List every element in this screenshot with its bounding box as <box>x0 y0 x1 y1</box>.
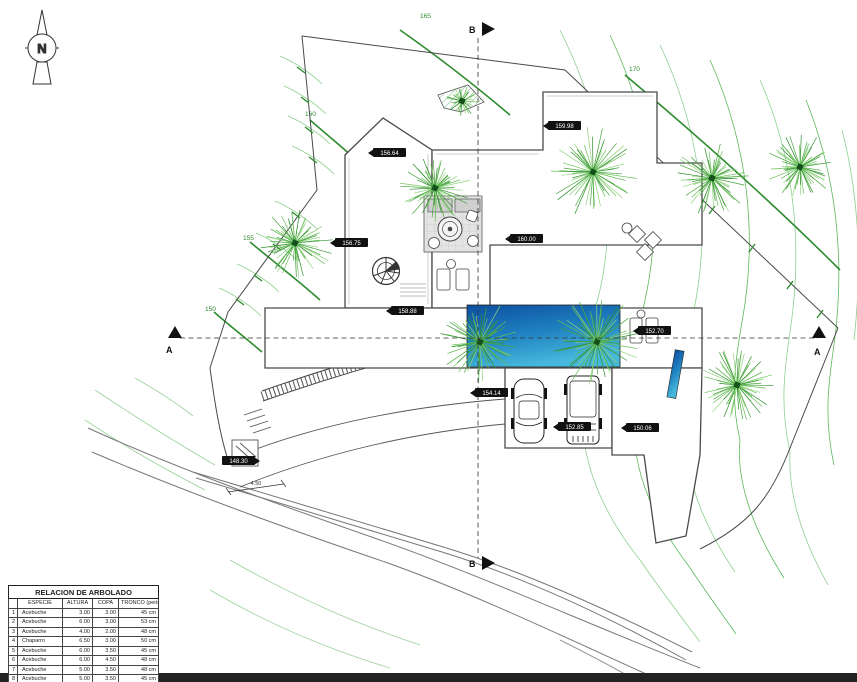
cell: Acebuche <box>18 646 63 656</box>
cell: 3.00 <box>93 618 119 628</box>
spot-elevation-label: 160.00 <box>505 234 543 243</box>
cell: 48 cm <box>119 627 159 637</box>
cell: 3.50 <box>93 646 119 656</box>
cell: 7 <box>9 665 18 675</box>
svg-text:156.64: 156.64 <box>380 151 399 157</box>
cell: Acebuche <box>18 627 63 637</box>
compass-north-label: N <box>37 41 46 56</box>
spot-elevation-label: 158.88 <box>386 306 424 315</box>
site-plan-drawing: 165 170 160 155 150 <box>0 0 857 682</box>
table-row: 5 Acebuche 6.00 3.50 45 cm <box>9 646 159 656</box>
compass-needle-icon <box>37 10 47 35</box>
cell: 5.00 <box>63 665 93 675</box>
section-label-b-top: B <box>469 25 476 35</box>
driveway-width-dimension: 4.50 <box>226 480 286 495</box>
cell: 48 cm <box>119 656 159 666</box>
cell: Acebuche <box>18 656 63 666</box>
svg-text:156.75: 156.75 <box>342 241 361 247</box>
tree <box>261 210 333 279</box>
svg-text:154.14: 154.14 <box>482 391 501 397</box>
spot-elevation-label: 150.06 <box>621 423 659 432</box>
cell: Acebuche <box>18 608 63 618</box>
spot-elevation-label: 152.70 <box>633 326 671 335</box>
section-arrow-a-left <box>168 326 182 338</box>
cell: 6.00 <box>63 618 93 628</box>
cell: 50 cm <box>119 637 159 647</box>
cell: 3.00 <box>63 608 93 618</box>
cell: 3.50 <box>93 665 119 675</box>
col-copa: COPA <box>93 599 119 609</box>
compass-base <box>33 62 51 84</box>
svg-text:150.06: 150.06 <box>633 426 652 432</box>
contour-label-160: 160 <box>305 111 316 118</box>
svg-text:160.00: 160.00 <box>517 237 536 243</box>
col-tronco: TRONCO (perimetro) <box>119 599 159 609</box>
cell: 6 <box>9 656 18 666</box>
car-suv <box>564 376 602 444</box>
contour-label-165: 165 <box>420 13 431 20</box>
cell: 45 cm <box>119 646 159 656</box>
svg-text:4.50: 4.50 <box>251 481 262 487</box>
cell: 45 cm <box>119 608 159 618</box>
cell: 3.00 <box>93 608 119 618</box>
spot-elevation-label: 154.14 <box>470 388 508 397</box>
cell: Chaparro <box>18 637 63 647</box>
table-title: RELACION DE ARBOLADO <box>9 586 159 599</box>
cell: 4.00 <box>63 627 93 637</box>
cell: 53 cm <box>119 618 159 628</box>
cell: 4.50 <box>93 656 119 666</box>
svg-text:158.88: 158.88 <box>398 309 417 315</box>
svg-text:159.98: 159.98 <box>555 124 574 130</box>
spot-elevation-label: 152.85 <box>553 422 591 431</box>
section-label-a-left: A <box>166 345 173 355</box>
spot-elevation-label: 159.98 <box>543 121 581 130</box>
table-row: 8 Acebuche 5.00 3.50 45 cm <box>9 675 159 682</box>
cell: 2 <box>9 618 18 628</box>
cell: 8 <box>9 675 18 682</box>
cell: 6.00 <box>63 656 93 666</box>
cell: 3 <box>9 627 18 637</box>
cell: 5.00 <box>63 675 93 682</box>
table-row: 2 Acebuche 6.00 3.00 53 cm <box>9 618 159 628</box>
tree <box>769 135 830 196</box>
table-row: 3 Acebuche 4.00 2.00 48 cm <box>9 627 159 637</box>
section-arrow-b-top <box>482 22 495 36</box>
cell: 2.00 <box>93 627 119 637</box>
section-arrow-a-right <box>812 326 826 338</box>
col-num <box>9 599 18 609</box>
cell: Acebuche <box>18 675 63 682</box>
cell: 45 cm <box>119 675 159 682</box>
cell: 1 <box>9 608 18 618</box>
cell: 6.00 <box>63 646 93 656</box>
table-row: 1 Acebuche 3.00 3.00 45 cm <box>9 608 159 618</box>
svg-text:152.85: 152.85 <box>565 425 584 431</box>
table-row: 6 Acebuche 6.00 4.50 48 cm <box>9 656 159 666</box>
section-label-b-bottom: B <box>469 559 476 569</box>
svg-text:152.70: 152.70 <box>645 329 664 335</box>
cell: 48 cm <box>119 665 159 675</box>
chair <box>468 236 479 247</box>
north-compass: N <box>25 10 59 84</box>
cell: 6.50 <box>63 637 93 647</box>
cell: Acebuche <box>18 665 63 675</box>
table-row: 4 Chaparro 6.50 3.00 50 cm <box>9 637 159 647</box>
contour-label-170: 170 <box>629 66 640 73</box>
table-row: 7 Acebuche 5.00 3.50 48 cm <box>9 665 159 675</box>
col-altura: ALTURA <box>63 599 93 609</box>
cell: 5 <box>9 646 18 656</box>
spot-elevation-label: 156.75 <box>330 238 368 247</box>
tree-schedule-table: RELACION DE ARBOLADO ESPECIE ALTURA COPA… <box>8 585 159 682</box>
contour-label-150: 150 <box>205 306 216 313</box>
cell: 3.50 <box>93 675 119 682</box>
cell: 4 <box>9 637 18 647</box>
cell: 3.00 <box>93 637 119 647</box>
table-title-row: RELACION DE ARBOLADO <box>9 586 159 599</box>
cell: Acebuche <box>18 618 63 628</box>
section-label-a-right: A <box>814 347 821 357</box>
col-especie: ESPECIE <box>18 599 63 609</box>
road <box>88 428 700 680</box>
patio <box>424 196 482 252</box>
svg-text:148.30: 148.30 <box>229 459 248 465</box>
driveway <box>228 399 505 487</box>
table-header-row: ESPECIE ALTURA COPA TRONCO (perimetro) <box>9 599 159 609</box>
spot-elevation-label: 156.64 <box>368 148 406 157</box>
contour-label-155: 155 <box>243 235 254 242</box>
spot-elevation-label: 148.30 <box>222 456 260 465</box>
chair <box>429 238 440 249</box>
building-right-wing <box>612 368 702 543</box>
tree <box>703 350 773 419</box>
site-plan-canvas: 165 170 160 155 150 <box>0 0 857 682</box>
car-sedan <box>511 379 547 443</box>
